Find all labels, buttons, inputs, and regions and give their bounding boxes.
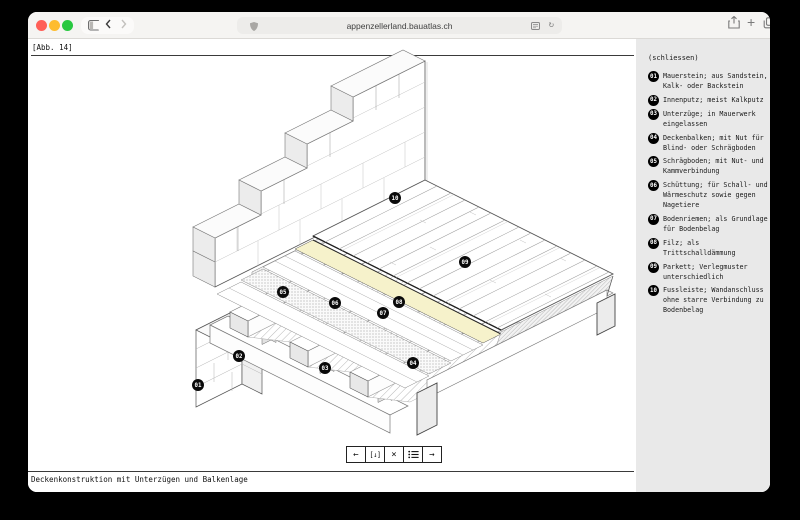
legend-badge: 07 <box>648 214 659 225</box>
desktop: { "browser": { "url": "appenzellerland.b… <box>0 0 800 520</box>
legend-text: Unterzüge; in Mauerwerk eingelassen <box>663 109 768 130</box>
diagram-label-05[interactable]: 05 <box>277 286 289 298</box>
legend-item-06: 06 Schüttung; für Schall- und Wärmeschut… <box>648 180 770 211</box>
caption-rule <box>28 471 634 472</box>
legend-text: Parkett; Verlegmuster unterschiedlich <box>663 262 768 283</box>
legend-item-02: 02 Innenputz; meist Kalkputz <box>648 95 770 106</box>
legend-item-10: 10 Fussleiste; Wandanschluss ohne starre… <box>648 285 770 316</box>
legend-item-04: 04 Deckenbalken; mit Nut für Blind- oder… <box>648 133 770 154</box>
diagram-label-04[interactable]: 04 <box>407 357 419 369</box>
legend-text: Filz; als Trittschalldämmung <box>663 238 768 259</box>
construction-diagram: 01 02 03 04 05 06 07 08 09 10 <box>28 39 636 467</box>
page-content: [Abb. 14] <box>28 39 770 492</box>
index-list-button[interactable] <box>403 446 423 463</box>
legend-sidebar: (schliessen) 01 Mauerstein; aus Sandstei… <box>636 39 770 492</box>
legend-item-08: 08 Filz; als Trittschalldämmung <box>648 238 770 259</box>
tabs-icon <box>763 17 770 29</box>
svg-text:02: 02 <box>236 354 243 360</box>
legend-text: Bodenriemen; als Grundlage für Bodenbela… <box>663 214 768 235</box>
download-button[interactable]: [↓] <box>365 446 385 463</box>
legend-text: Schüttung; für Schall- und Wärmeschutz s… <box>663 180 768 211</box>
download-icon: [↓] <box>369 451 380 459</box>
svg-text:04: 04 <box>410 361 417 367</box>
minimize-window-button[interactable] <box>49 20 60 31</box>
legend-badge: 03 <box>648 109 659 120</box>
legend-badge: 01 <box>648 71 659 82</box>
diagram-label-07[interactable]: 07 <box>377 307 389 319</box>
tabs-overview-button[interactable] <box>763 16 770 34</box>
close-legend-link[interactable]: (schliessen) <box>648 54 699 62</box>
diagram-label-09[interactable]: 09 <box>459 256 471 268</box>
svg-text:08: 08 <box>396 300 403 306</box>
legend-text: Schrägboden; mit Nut- und Kammverbindung <box>663 156 768 177</box>
figure-caption: Deckenkonstruktion mit Unterzügen und Ba… <box>31 475 248 484</box>
legend-text: Mauerstein; aus Sandstein, Kalk- oder Ba… <box>663 71 768 92</box>
url-text: appenzellerland.bauatlas.ch <box>347 21 453 31</box>
legend-text: Fussleiste; Wandanschluss ohne starre Ve… <box>663 285 768 316</box>
next-figure-button[interactable]: → <box>422 446 442 463</box>
address-bar[interactable]: appenzellerland.bauatlas.ch ↻ <box>237 17 562 34</box>
legend-badge: 05 <box>648 156 659 167</box>
browser-titlebar: appenzellerland.bauatlas.ch ↻ + <box>28 12 770 39</box>
diagram-label-03[interactable]: 03 <box>319 362 331 374</box>
legend-item-07: 07 Bodenriemen; als Grundlage für Bodenb… <box>648 214 770 235</box>
legend-text: Innenputz; meist Kalkputz <box>663 95 768 106</box>
close-figure-button[interactable]: × <box>384 446 404 463</box>
legend-badge: 10 <box>648 285 659 296</box>
list-icon <box>408 450 419 459</box>
legend-item-05: 05 Schrägboden; mit Nut- und Kammverbind… <box>648 156 770 177</box>
close-window-button[interactable] <box>36 20 47 31</box>
legend-item-09: 09 Parkett; Verlegmuster unterschiedlich <box>648 262 770 283</box>
share-icon <box>728 16 740 29</box>
forward-icon <box>121 19 127 29</box>
svg-text:10: 10 <box>392 196 399 202</box>
figure-toolbar: ← [↓] × → <box>346 446 442 463</box>
reader-icon[interactable] <box>531 22 540 30</box>
diagram-label-01[interactable]: 01 <box>192 379 204 391</box>
back-icon <box>105 19 111 29</box>
legend-text: Deckenbalken; mit Nut für Blind- oder Sc… <box>663 133 768 154</box>
svg-text:03: 03 <box>322 366 329 372</box>
new-tab-button[interactable]: + <box>747 14 755 30</box>
diagram-label-10[interactable]: 10 <box>389 192 401 204</box>
legend-item-03: 03 Unterzüge; in Mauerwerk eingelassen <box>648 109 770 130</box>
legend-badge: 09 <box>648 262 659 273</box>
svg-text:07: 07 <box>380 311 387 317</box>
legend-item-01: 01 Mauerstein; aus Sandstein, Kalk- oder… <box>648 71 770 92</box>
svg-text:01: 01 <box>195 383 202 389</box>
legend-badge: 06 <box>648 180 659 191</box>
reload-icon[interactable]: ↻ <box>549 20 554 30</box>
prev-figure-button[interactable]: ← <box>346 446 366 463</box>
legend-badge: 02 <box>648 95 659 106</box>
browser-window: appenzellerland.bauatlas.ch ↻ + [Ab <box>28 12 770 492</box>
diagram-label-02[interactable]: 02 <box>233 350 245 362</box>
legend-badge: 04 <box>648 133 659 144</box>
svg-text:06: 06 <box>332 301 339 307</box>
legend-badge: 08 <box>648 238 659 249</box>
diagram-label-08[interactable]: 08 <box>393 296 405 308</box>
zoom-window-button[interactable] <box>62 20 73 31</box>
forward-button[interactable] <box>121 19 127 32</box>
back-button[interactable] <box>105 19 111 32</box>
svg-text:05: 05 <box>280 290 287 296</box>
diagram-label-06[interactable]: 06 <box>329 297 341 309</box>
share-button[interactable] <box>728 16 740 34</box>
shield-icon[interactable] <box>250 22 258 31</box>
svg-text:09: 09 <box>462 260 469 266</box>
